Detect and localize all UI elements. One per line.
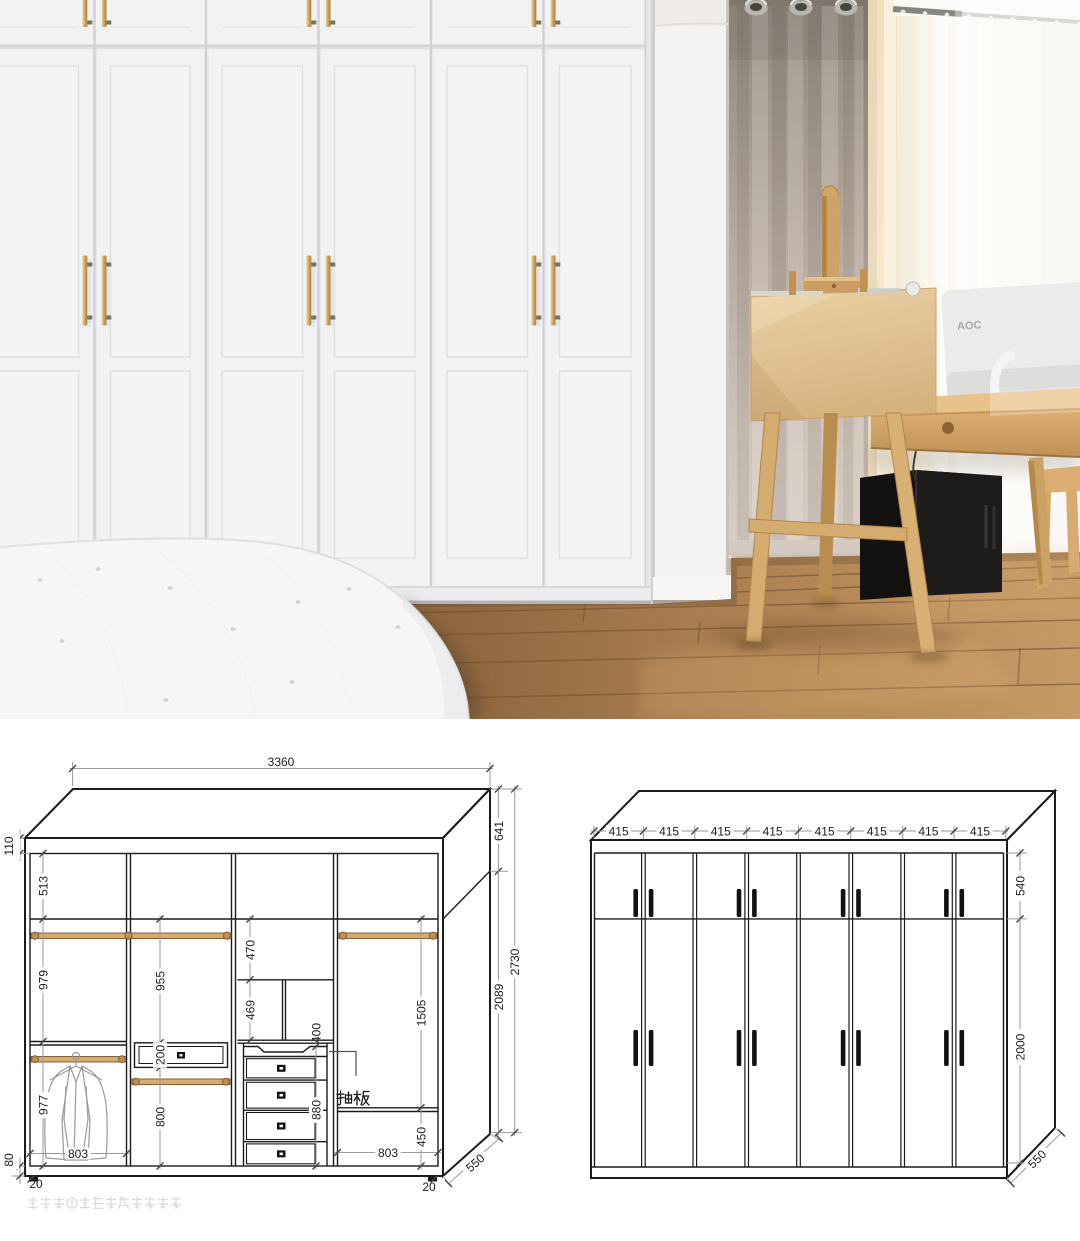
svg-text:469: 469 bbox=[244, 1000, 258, 1020]
svg-text:800: 800 bbox=[154, 1107, 168, 1127]
svg-text:803: 803 bbox=[378, 1146, 398, 1160]
svg-text:110: 110 bbox=[2, 836, 16, 855]
svg-text:977: 977 bbox=[37, 1095, 51, 1115]
svg-text:955: 955 bbox=[154, 971, 168, 991]
svg-text:513: 513 bbox=[37, 876, 51, 896]
svg-text:979: 979 bbox=[37, 970, 51, 990]
svg-text:415: 415 bbox=[609, 825, 629, 839]
svg-text:415: 415 bbox=[711, 825, 731, 839]
svg-text:415: 415 bbox=[970, 825, 990, 839]
svg-text:450: 450 bbox=[415, 1127, 429, 1147]
svg-text:80: 80 bbox=[2, 1153, 16, 1167]
svg-text:AOC: AOC bbox=[957, 319, 982, 332]
svg-text:20: 20 bbox=[422, 1180, 436, 1194]
svg-text:3360: 3360 bbox=[268, 755, 295, 769]
svg-text:641: 641 bbox=[492, 821, 506, 841]
svg-text:415: 415 bbox=[867, 825, 887, 839]
svg-text:2000: 2000 bbox=[1014, 1033, 1028, 1060]
svg-text:415: 415 bbox=[659, 825, 679, 839]
svg-text:880: 880 bbox=[310, 1100, 324, 1120]
svg-text:400: 400 bbox=[310, 1023, 324, 1043]
svg-text:415: 415 bbox=[763, 825, 783, 839]
svg-text:415: 415 bbox=[918, 825, 938, 839]
svg-text:803: 803 bbox=[68, 1147, 88, 1161]
svg-text:200: 200 bbox=[154, 1045, 168, 1065]
svg-text:540: 540 bbox=[1014, 876, 1028, 896]
svg-text:470: 470 bbox=[244, 940, 258, 960]
svg-text:2089: 2089 bbox=[492, 983, 506, 1010]
svg-text:2730: 2730 bbox=[508, 948, 522, 975]
svg-text:1505: 1505 bbox=[415, 999, 429, 1026]
svg-text:415: 415 bbox=[815, 825, 835, 839]
